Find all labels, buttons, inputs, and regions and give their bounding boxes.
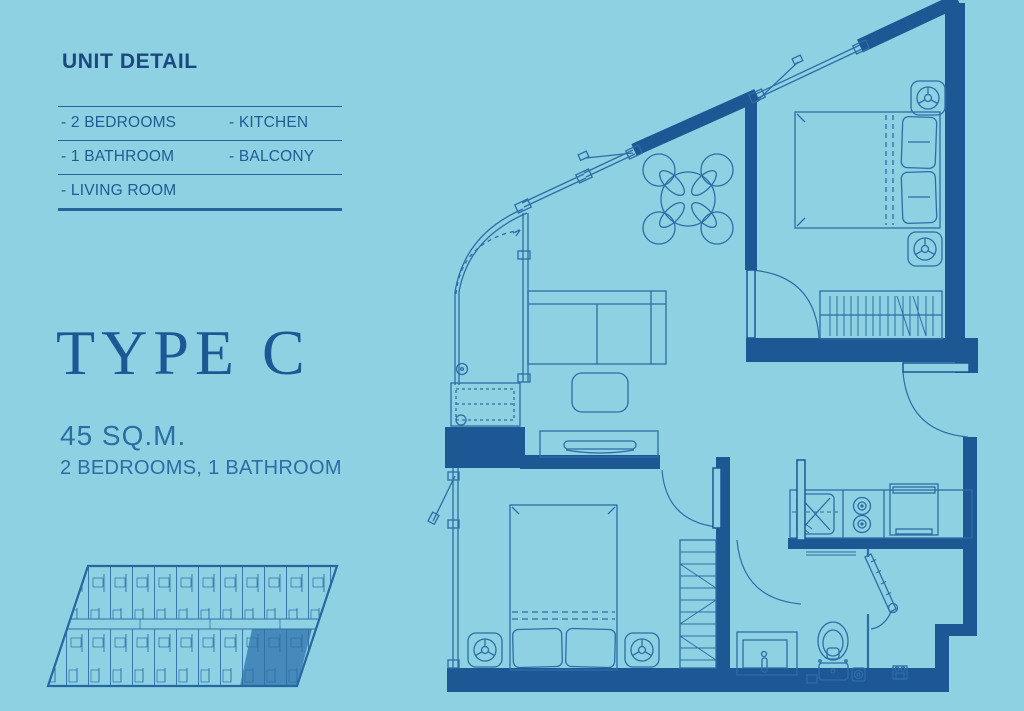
- unit-area: 45 SQ.M.: [60, 420, 186, 452]
- feature-item: - BALCONY: [229, 148, 314, 166]
- tv-console: [540, 431, 658, 457]
- bathroom-door-swing: [737, 540, 801, 604]
- master-door-leaf: [747, 270, 755, 338]
- ceiling-light-icon: [908, 232, 942, 266]
- shower-door: [865, 554, 898, 629]
- bedroom-2: [468, 505, 716, 670]
- master-bed: [795, 112, 940, 228]
- master-bedroom: [795, 81, 945, 339]
- unit-detail-heading: UNIT DETAIL: [62, 50, 198, 74]
- bed-2: [510, 505, 617, 670]
- mini-floor-plate: [48, 566, 337, 686]
- doors: [662, 270, 969, 604]
- dining-table: [661, 172, 715, 226]
- living-room: [528, 291, 666, 457]
- feature-item: - KITCHEN: [229, 114, 308, 132]
- dining-area: [643, 154, 733, 244]
- unit-type-title: TYPE C: [56, 316, 311, 390]
- refrigerator: [890, 484, 938, 535]
- wardrobe: [820, 291, 942, 339]
- feature-item: - LIVING ROOM: [61, 182, 229, 200]
- ceiling-light-icon: [911, 81, 945, 115]
- kitchen: [790, 484, 972, 538]
- ac-ledge: [451, 383, 520, 426]
- bathroom-door-leaf: [797, 460, 805, 540]
- feature-item: - 2 BEDROOMS: [61, 114, 229, 132]
- balcony: [451, 209, 530, 426]
- ceiling-light-icon: [625, 633, 659, 667]
- unit-configuration: 2 BEDROOMS, 1 BATHROOM: [60, 457, 342, 480]
- towel-rail: [806, 552, 856, 555]
- sofa: [528, 291, 666, 364]
- floor-plan-page: UNIT DETAIL - 2 BEDROOMS - KITCHEN - 1 B…: [0, 0, 1024, 711]
- bedroom2-door-leaf: [713, 468, 721, 528]
- bathroom: [737, 549, 907, 683]
- kitchen-counter: [790, 490, 972, 538]
- master-door-swing: [751, 270, 819, 338]
- entry-door-leaf: [903, 363, 969, 372]
- coffee-table: [572, 373, 628, 412]
- feature-row: - LIVING ROOM: [58, 174, 342, 208]
- ceiling-light-icon: [468, 633, 502, 667]
- feature-row: - 2 BEDROOMS - KITCHEN: [58, 106, 342, 140]
- feature-item: - 1 BATHROOM: [61, 148, 229, 166]
- bedroom2-door-swing: [662, 470, 717, 527]
- feature-row: - 1 BATHROOM - BALCONY: [58, 140, 342, 174]
- unit-feature-table: - 2 BEDROOMS - KITCHEN - 1 BATHROOM - BA…: [58, 106, 342, 211]
- stove: [854, 498, 871, 533]
- entry-door-swing: [903, 372, 968, 437]
- shelving-unit: [680, 540, 716, 668]
